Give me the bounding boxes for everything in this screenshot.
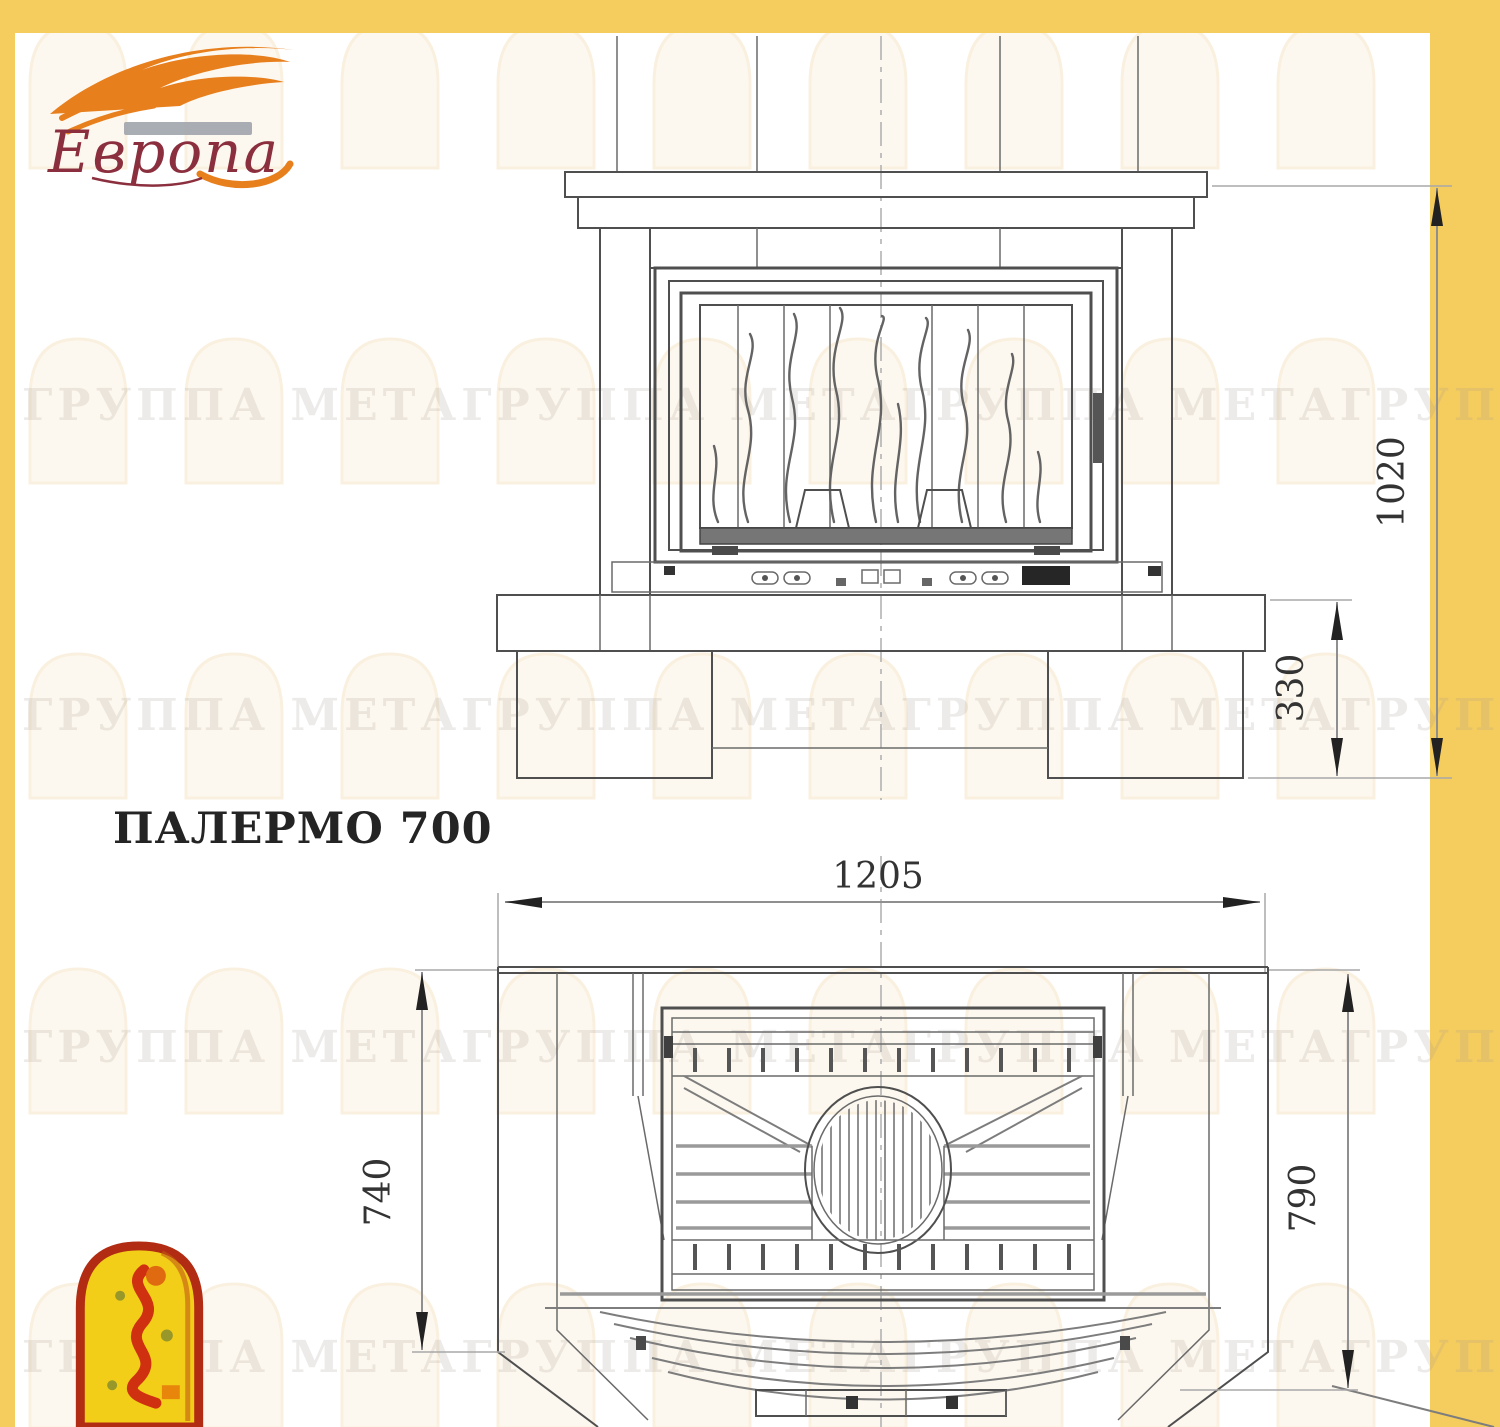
dimension-label-790: 790 [1283,1164,1324,1233]
bottom-louver-ticks [695,1244,1069,1270]
plan-view: 1205 [358,856,1494,1427]
plinth-right [1048,651,1243,778]
plan-left-outer-wall [498,967,598,1427]
arch-figure-icon [80,1246,198,1427]
mantel-shelf-step [578,197,1194,228]
dimension-label-1020: 1020 [1372,436,1413,528]
dimension-label-740: 740 [358,1158,399,1227]
left-column [600,228,650,595]
model-title: ПАЛЕРМО 700 [113,804,493,854]
right-column [1122,228,1172,595]
front-elevation-view: 1020 330 [497,36,1452,800]
dimension-front-height: 1020 [1212,186,1452,778]
flame-decor-icon [713,308,1040,522]
wall-reference-lines [617,36,1138,172]
firebox-insert [655,268,1117,562]
dimension-label-330: 330 [1271,654,1312,723]
plan-top-edges [498,967,1268,973]
plan-right-outer-wall [1168,967,1268,1427]
round-grille-icon [805,1087,951,1253]
grate-bar [700,528,1072,544]
plan-left-inner-wall [557,973,648,1420]
plan-firebox-insert [662,1008,1104,1300]
plinth-left [517,651,712,778]
andiron-left [796,490,849,528]
dimension-base-height: 330 [1270,600,1352,776]
logo-europa: Европа [32,22,304,194]
door-handle [1093,393,1104,463]
brand-emblem [72,1236,208,1427]
dimension-label-1205: 1205 [832,856,924,897]
plan-right-inner-wall [1118,973,1209,1420]
logo-wordmark: Европа [47,118,280,186]
technical-drawing: 1020 330 1205 [0,0,1500,1427]
dimension-plan-depth-side: 740 [358,972,505,1352]
firebox-glass [700,305,1072,528]
scanned-page: ГРУППА МЕТАГРУППА МЕТАГРУППА МЕТАГРУППА … [0,0,1500,1427]
control-strip [612,562,1162,592]
mantel-shelf-top [565,172,1207,197]
top-louver-ticks [695,1048,1069,1072]
